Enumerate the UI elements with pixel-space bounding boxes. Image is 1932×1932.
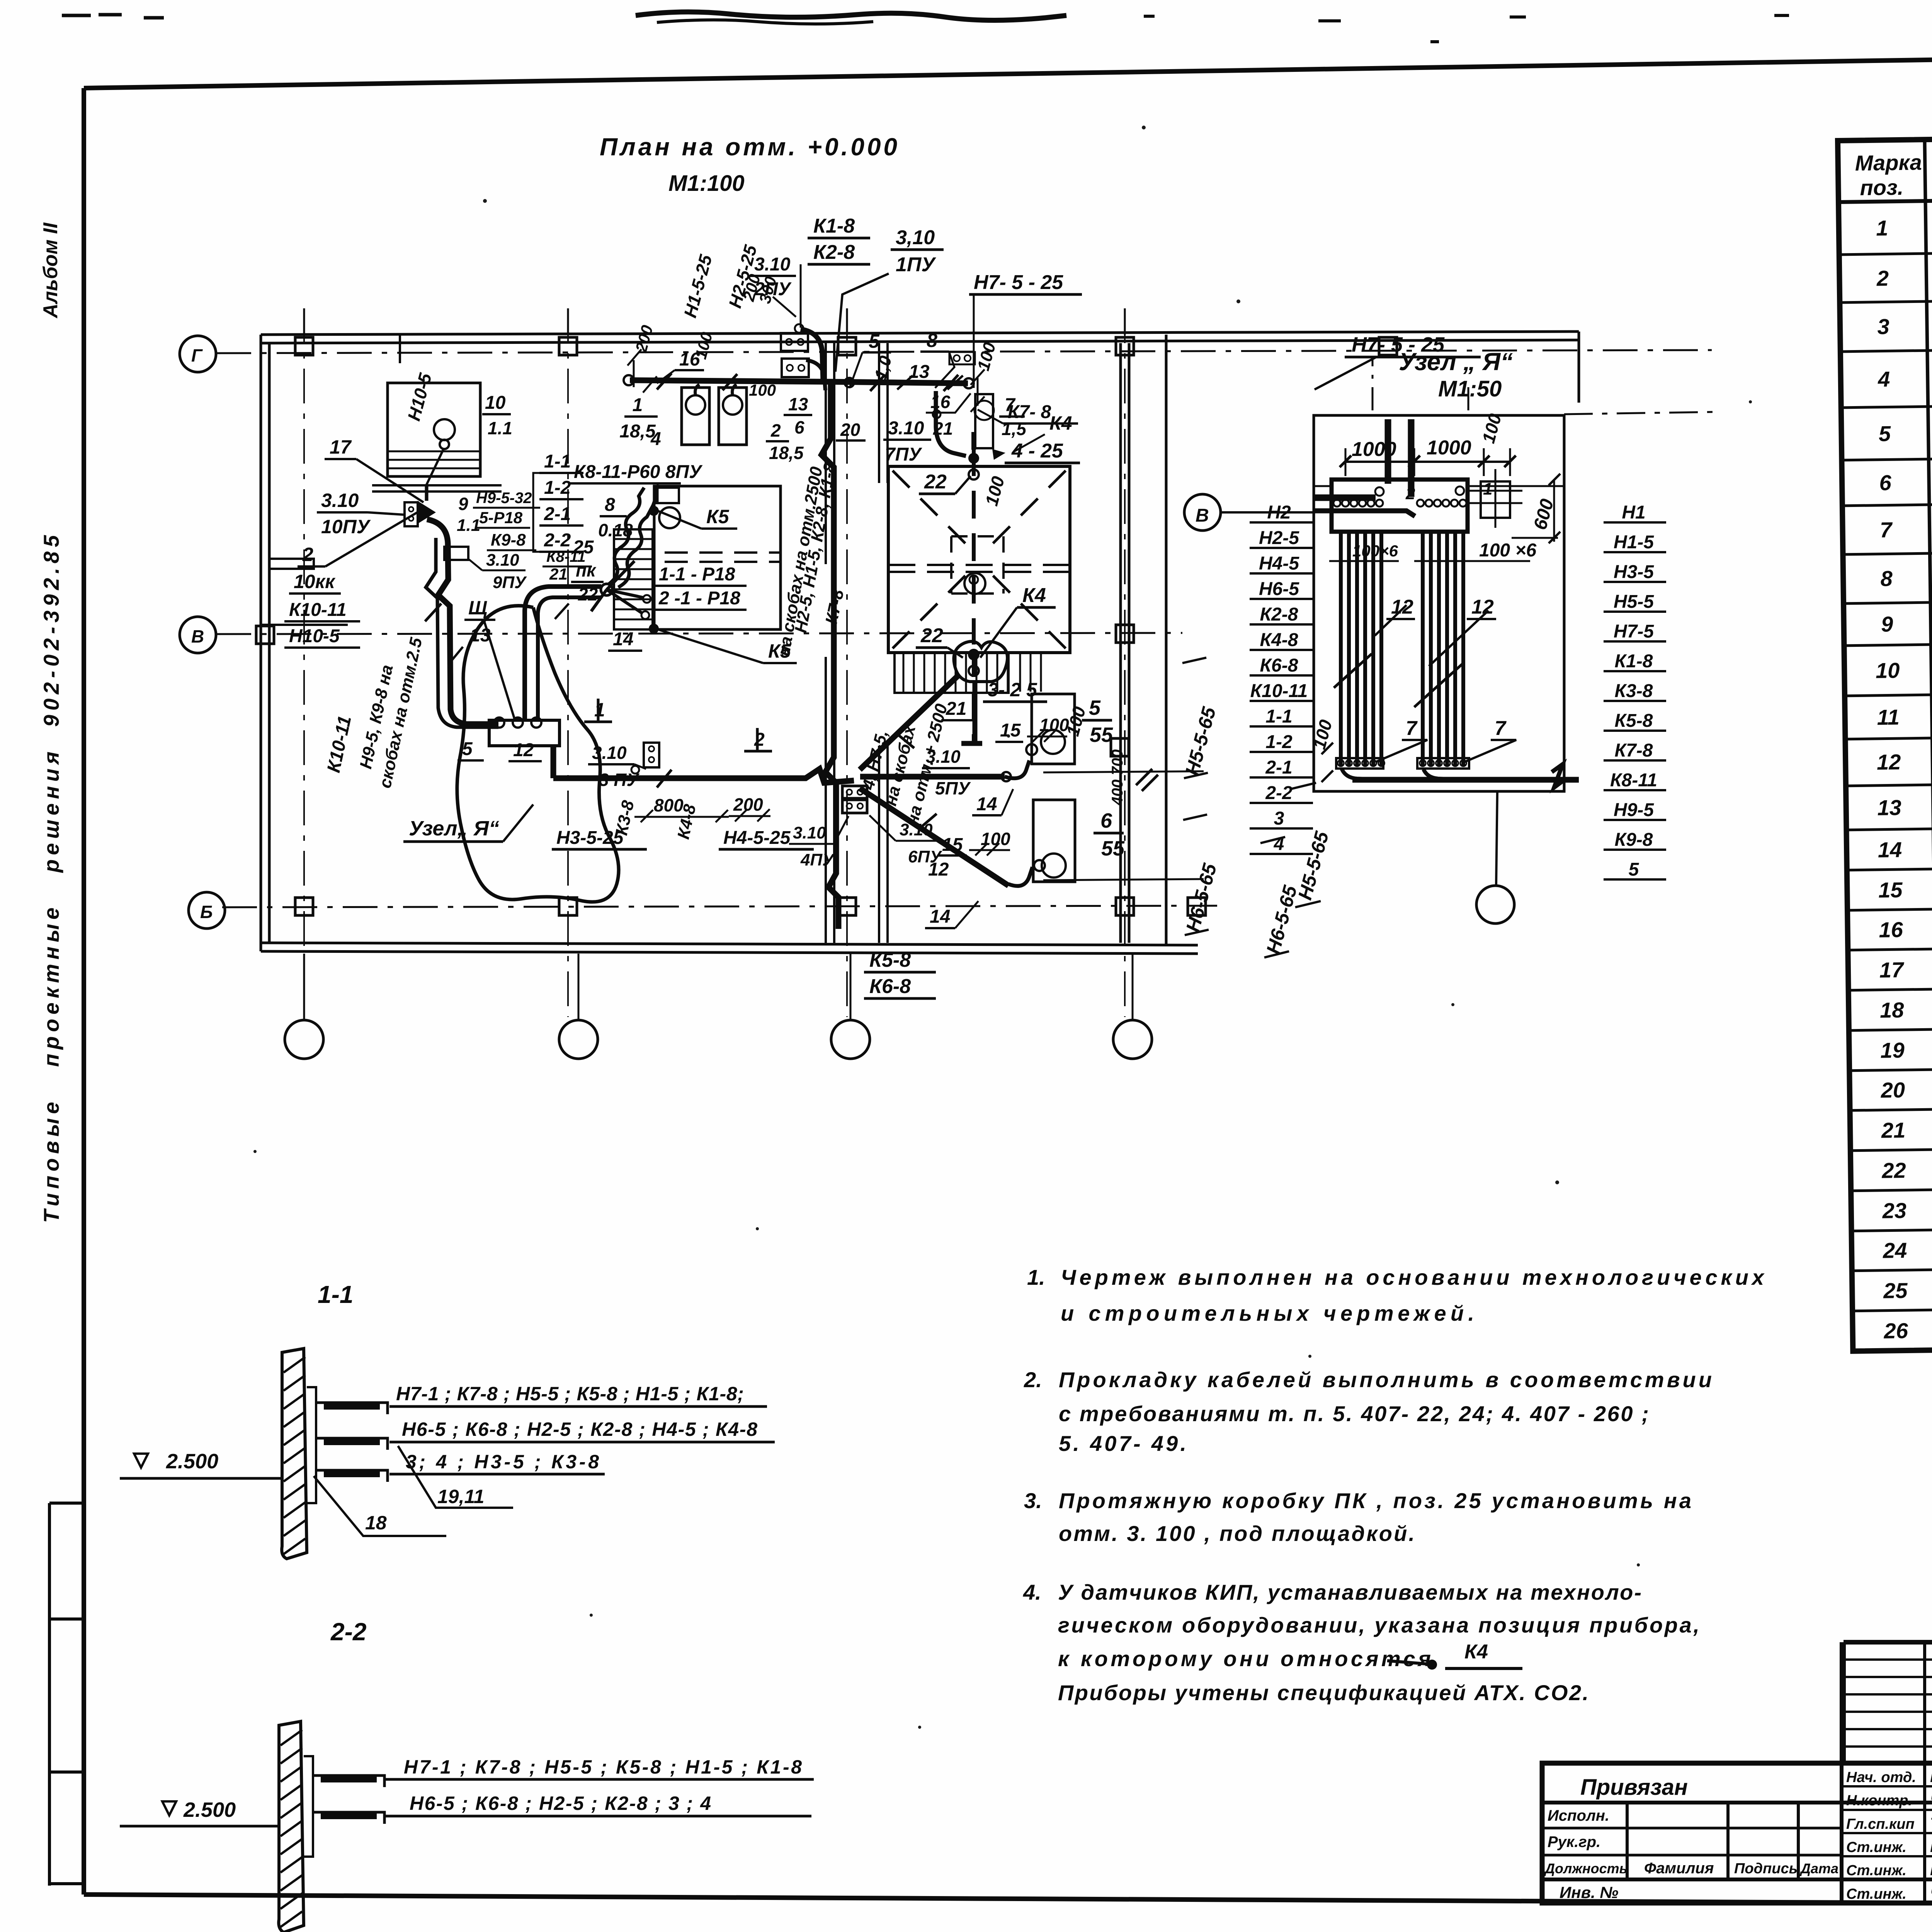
svg-text:Привязан: Привязан <box>1580 1775 1688 1800</box>
svg-text:поз.: поз. <box>1860 175 1903 200</box>
svg-text:10кк: 10кк <box>294 571 336 592</box>
svg-text:Ст.инж.: Ст.инж. <box>1846 1839 1906 1855</box>
svg-text:Н9-5: Н9-5 <box>1614 800 1654 820</box>
svg-text:Н1-5: Н1-5 <box>1614 532 1654 553</box>
svg-text:К3-8: К3-8 <box>1615 681 1653 701</box>
svg-text:13: 13 <box>470 625 491 646</box>
svg-text:К10-11: К10-11 <box>1250 681 1308 701</box>
svg-text:400 700: 400 700 <box>1109 749 1126 806</box>
svg-text:3.10: 3.10 <box>793 823 826 842</box>
svg-text:24: 24 <box>1883 1238 1907 1263</box>
svg-text:6: 6 <box>1100 809 1112 832</box>
svg-text:1ПУ: 1ПУ <box>896 253 936 276</box>
svg-text:9ПУ: 9ПУ <box>493 573 527 592</box>
svg-text:Гл.сп.кип: Гл.сп.кип <box>1846 1816 1915 1832</box>
svg-text:5: 5 <box>1879 421 1891 446</box>
svg-text:18: 18 <box>365 1512 387 1534</box>
svg-text:100×6: 100×6 <box>1352 542 1398 560</box>
svg-text:5-Р18: 5-Р18 <box>479 509 523 527</box>
svg-text:Г: Г <box>191 345 203 366</box>
svg-text:К8-11: К8-11 <box>1610 770 1657 791</box>
svg-text:Н3-5: Н3-5 <box>1614 562 1654 582</box>
svg-text:М1:50: М1:50 <box>1438 376 1502 401</box>
svg-text:Альбом II: Альбом II <box>39 222 62 319</box>
svg-text:1-1 - Р18: 1-1 - Р18 <box>659 564 735 585</box>
svg-text:12: 12 <box>928 859 949 880</box>
svg-text:Узел„ Я“: Узел„ Я“ <box>409 817 499 840</box>
svg-text:19,11: 19,11 <box>437 1486 484 1507</box>
svg-text:Н7-1 ; К7-8 ; Н5-5 ; К5-8: Н7-1 ; К7-8 ; Н5-5 ; К5-8 ; Н1-5 ; К1-8 <box>404 1756 802 1778</box>
svg-text:1.1: 1.1 <box>488 418 512 438</box>
svg-text:3: 3 <box>1877 314 1889 338</box>
svg-text:2.500: 2.500 <box>166 1450 218 1473</box>
svg-text:1.: 1. <box>1027 1265 1045 1289</box>
svg-text:Подпись: Подпись <box>1734 1861 1798 1877</box>
svg-text:Чапны: Чапны <box>1930 1791 1932 1809</box>
svg-text:1-1: 1-1 <box>1265 706 1292 727</box>
svg-text:15: 15 <box>1000 720 1021 741</box>
svg-text:К4: К4 <box>1464 1641 1488 1663</box>
svg-text:3.10: 3.10 <box>321 490 359 511</box>
svg-text:20: 20 <box>1880 1078 1905 1102</box>
svg-text:В: В <box>191 626 204 646</box>
svg-text:4: 4 <box>1878 367 1890 391</box>
svg-text:к которому они относятся: к которому они относятся <box>1058 1646 1431 1671</box>
svg-text:Приборы учтены спецификацией: Приборы учтены спецификацией АТХ. СО2. <box>1058 1680 1588 1705</box>
svg-text:6: 6 <box>1879 470 1892 495</box>
svg-text:7ПУ: 7ПУ <box>885 444 922 465</box>
svg-text:16: 16 <box>930 392 951 412</box>
svg-text:отм. 3. 100 , под площадк: отм. 3. 100 , под площадкой. <box>1059 1521 1415 1546</box>
svg-text:3 ПУ: 3 ПУ <box>599 770 640 790</box>
svg-text:8: 8 <box>1880 566 1893 590</box>
svg-text:4.: 4. <box>1023 1580 1041 1604</box>
svg-text:Дата: Дата <box>1799 1861 1838 1876</box>
svg-text:Марка: Марка <box>1855 150 1922 175</box>
svg-text:3.10: 3.10 <box>486 551 519 570</box>
svg-text:Н6-5 ; К6-8 ; Н2-5 ; К2-8: Н6-5 ; К6-8 ; Н2-5 ; К2-8 ; Н4-5 ; К4-8 <box>402 1418 757 1440</box>
svg-text:8: 8 <box>605 495 615 515</box>
svg-text:22: 22 <box>1881 1158 1906 1183</box>
svg-text:10: 10 <box>1876 658 1900 683</box>
svg-text:Н7- 5 - 25: Н7- 5 - 25 <box>974 271 1063 294</box>
svg-text:Н7-5: Н7-5 <box>1614 621 1654 642</box>
svg-text:Б: Б <box>200 902 213 922</box>
svg-text:5: 5 <box>1629 859 1639 880</box>
svg-text:2: 2 <box>1876 266 1889 290</box>
svg-text:13: 13 <box>1877 795 1901 820</box>
svg-text:Прокладку кабелей выполнить: Прокладку кабелей выполнить в соответств… <box>1059 1367 1712 1392</box>
svg-text:Ст.инж.: Ст.инж. <box>1846 1862 1906 1879</box>
svg-text:16: 16 <box>1879 917 1903 942</box>
svg-text:Тарасов: Тарасов <box>1930 1814 1932 1832</box>
svg-text:14: 14 <box>1878 837 1902 862</box>
svg-text:2: 2 <box>770 420 781 440</box>
svg-text:4 - 25: 4 - 25 <box>1011 440 1063 462</box>
svg-text:25: 25 <box>1883 1278 1908 1303</box>
svg-text:К5: К5 <box>706 506 730 527</box>
svg-text:Должность: Должность <box>1544 1861 1628 1876</box>
svg-text:К5: К5 <box>768 640 791 662</box>
svg-text:1.1: 1.1 <box>457 516 480 535</box>
svg-text:7: 7 <box>1880 517 1893 542</box>
svg-text:14: 14 <box>613 629 633 650</box>
svg-text:55: 55 <box>1090 723 1113 747</box>
svg-text:22: 22 <box>578 584 598 604</box>
svg-text:15: 15 <box>942 835 963 855</box>
svg-text:1-2: 1-2 <box>544 478 571 498</box>
svg-text:18,5: 18,5 <box>769 443 804 463</box>
svg-text:1000: 1000 <box>1427 437 1471 459</box>
svg-text:Нач. отд.: Нач. отд. <box>1846 1769 1916 1786</box>
svg-text:10ПУ: 10ПУ <box>321 516 371 537</box>
svg-text:с требованиями т. п. 5. 407: с требованиями т. п. 5. 407- 22, 24; 4. … <box>1059 1401 1649 1426</box>
svg-text:5. 407- 49.: 5. 407- 49. <box>1059 1431 1186 1456</box>
svg-text:План на отм. +0.000: План на отм. +0.000 <box>600 133 897 161</box>
svg-text:8: 8 <box>927 330 937 351</box>
svg-text:К6-8: К6-8 <box>1260 655 1298 676</box>
svg-text:21: 21 <box>946 699 966 719</box>
svg-text:22: 22 <box>920 624 943 647</box>
svg-text:Н4-5-25: Н4-5-25 <box>723 828 791 848</box>
svg-text:23: 23 <box>1882 1198 1906 1223</box>
svg-text:21: 21 <box>549 565 568 583</box>
svg-text:12: 12 <box>1877 750 1901 774</box>
svg-text:1000: 1000 <box>1352 438 1396 461</box>
svg-text:К2-8: К2-8 <box>1260 604 1298 625</box>
svg-text:У датчиков КИП, устанавливаем: У датчиков КИП, устанавливаемых на техно… <box>1058 1580 1641 1604</box>
svg-text:7: 7 <box>1495 717 1507 740</box>
svg-text:12: 12 <box>1391 596 1413 618</box>
svg-text:Н10-5: Н10-5 <box>289 626 340 646</box>
svg-text:Н4-5: Н4-5 <box>1259 553 1299 574</box>
svg-text:Рук.гр.: Рук.гр. <box>1548 1833 1600 1850</box>
svg-text:2.: 2. <box>1024 1367 1042 1392</box>
svg-text:К8-11: К8-11 <box>546 548 586 565</box>
svg-text:2: 2 <box>1405 484 1415 503</box>
svg-text:1-1: 1-1 <box>318 1281 354 1308</box>
svg-text:19: 19 <box>1880 1038 1905 1063</box>
svg-text:3.10: 3.10 <box>754 254 791 275</box>
svg-text:10: 10 <box>485 393 506 413</box>
svg-text:К9-8: К9-8 <box>491 531 526 549</box>
svg-text:12: 12 <box>513 740 534 760</box>
svg-text:2-1: 2-1 <box>544 504 571 524</box>
svg-text:14: 14 <box>976 794 997 815</box>
svg-text:К4-8: К4-8 <box>1260 630 1298 650</box>
svg-text:Черепанова: Черепанова <box>1930 1884 1932 1902</box>
svg-text:22: 22 <box>924 471 947 493</box>
svg-text:Ст.инж.: Ст.инж. <box>1846 1886 1906 1902</box>
svg-text:Н9-5-32: Н9-5-32 <box>476 490 532 507</box>
svg-text:Н.контр.: Н.контр. <box>1846 1793 1912 1809</box>
svg-text:Н7- 5 - 25: Н7- 5 - 25 <box>1352 333 1445 356</box>
svg-text:1: 1 <box>594 699 605 721</box>
svg-text:Фамилия: Фамилия <box>1644 1860 1714 1877</box>
svg-text:9: 9 <box>1881 612 1893 636</box>
svg-text:К8-11-Р60 8ПУ: К8-11-Р60 8ПУ <box>574 462 703 482</box>
svg-text:Иваненко: Иваненко <box>1930 1767 1932 1786</box>
svg-text:6: 6 <box>794 417 804 437</box>
svg-text:К10-11: К10-11 <box>289 600 347 620</box>
svg-text:2-2: 2-2 <box>544 530 571 551</box>
svg-text:7: 7 <box>1005 395 1016 415</box>
svg-text:1-1: 1-1 <box>544 451 571 472</box>
svg-text:15: 15 <box>1878 878 1903 902</box>
svg-text:1: 1 <box>1876 216 1888 240</box>
svg-text:2: 2 <box>302 544 313 565</box>
svg-text:2-2: 2-2 <box>330 1618 367 1646</box>
svg-text:2.500: 2.500 <box>183 1798 236 1821</box>
svg-text:Бреслова: Бреслова <box>1930 1837 1932 1855</box>
svg-text:К1-8: К1-8 <box>1615 651 1653 672</box>
svg-text:7: 7 <box>1406 717 1418 740</box>
svg-text:К4: К4 <box>1049 412 1072 434</box>
svg-text:55: 55 <box>1101 837 1125 860</box>
svg-text:2: 2 <box>754 730 765 750</box>
svg-text:9: 9 <box>458 494 468 514</box>
svg-text:26: 26 <box>1883 1318 1908 1343</box>
svg-text:К7-8: К7-8 <box>1615 740 1653 761</box>
svg-text:К1-8: К1-8 <box>813 215 855 237</box>
svg-text:Н5-5: Н5-5 <box>1614 592 1654 612</box>
svg-text:5ПУ: 5ПУ <box>935 778 971 798</box>
svg-text:К2-8: К2-8 <box>813 241 855 264</box>
svg-text:4ПУ: 4ПУ <box>800 850 835 869</box>
svg-text:13: 13 <box>788 394 808 414</box>
svg-text:17: 17 <box>1879 957 1905 982</box>
svg-text:3: 3 <box>1274 808 1284 829</box>
svg-text:13: 13 <box>909 362 930 382</box>
svg-text:1,5: 1,5 <box>1002 419 1027 439</box>
svg-text:3- 2 5: 3- 2 5 <box>988 679 1037 701</box>
svg-text:Н6-5: Н6-5 <box>1259 579 1299 599</box>
svg-text:2-2: 2-2 <box>1265 783 1293 803</box>
svg-text:100: 100 <box>749 381 776 399</box>
svg-text:Кулешова: Кулешова <box>1930 1861 1932 1879</box>
svg-text:20: 20 <box>840 420 861 440</box>
svg-text:Н2-5: Н2-5 <box>1259 528 1299 548</box>
svg-text:К5-8: К5-8 <box>869 949 911 971</box>
svg-text:В: В <box>1196 505 1209 526</box>
svg-text:М1:100: М1:100 <box>668 171 745 196</box>
svg-text:К5-8: К5-8 <box>1615 711 1653 731</box>
svg-text:18: 18 <box>1880 998 1905 1022</box>
svg-text:1: 1 <box>633 395 643 415</box>
svg-text:Инв. №: Инв. № <box>1560 1883 1618 1901</box>
svg-text:Н1: Н1 <box>1622 502 1645 523</box>
svg-text:1-2: 1-2 <box>1265 732 1293 752</box>
svg-text:4: 4 <box>650 429 661 449</box>
svg-text:11: 11 <box>1877 705 1900 730</box>
svg-text:0.18: 0.18 <box>598 520 633 540</box>
svg-text:17: 17 <box>330 436 352 458</box>
svg-text:К6-8: К6-8 <box>869 975 911 998</box>
svg-text:100 ×6: 100 ×6 <box>1479 540 1536 561</box>
svg-text:2-1: 2-1 <box>1265 757 1292 778</box>
svg-text:2 -1 - Р18: 2 -1 - Р18 <box>658 588 740 609</box>
svg-text:Щ: Щ <box>468 597 487 619</box>
svg-text:5: 5 <box>1089 696 1101 719</box>
svg-text:Н7-1 ; К7-8 ; Н5-5 ; К5-8 ;: Н7-1 ; К7-8 ; Н5-5 ; К5-8 ; Н1-5 ; К1-8; <box>396 1383 744 1405</box>
svg-text:Исполн.: Исполн. <box>1548 1807 1609 1824</box>
svg-text:5: 5 <box>869 330 880 352</box>
svg-text:3.10: 3.10 <box>888 418 924 439</box>
svg-text:5: 5 <box>462 739 473 759</box>
svg-text:Н2: Н2 <box>1267 502 1291 523</box>
svg-text:3.10: 3.10 <box>900 820 933 839</box>
svg-text:3.: 3. <box>1024 1488 1042 1513</box>
svg-text:К4: К4 <box>1022 584 1046 607</box>
svg-text:21: 21 <box>1881 1118 1906 1143</box>
svg-text:К9-8: К9-8 <box>1615 830 1653 850</box>
svg-text:200: 200 <box>733 794 763 815</box>
svg-text:14: 14 <box>930 906 950 927</box>
svg-text:3.10: 3.10 <box>592 743 627 763</box>
svg-text:3,10: 3,10 <box>896 226 935 249</box>
